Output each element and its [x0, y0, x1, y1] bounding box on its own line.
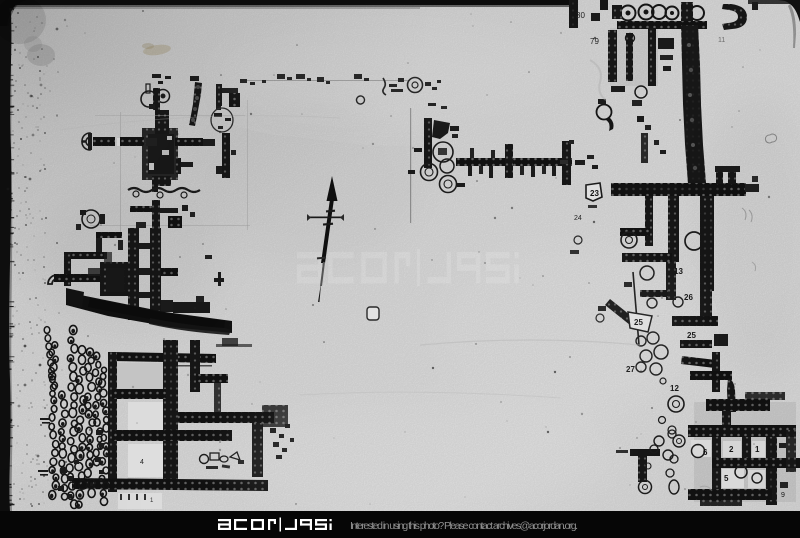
svg-text:13: 13 [674, 267, 683, 276]
svg-text:6: 6 [703, 448, 708, 457]
svg-text:2: 2 [729, 445, 734, 454]
svg-text:26: 26 [684, 293, 693, 302]
svg-text:5: 5 [724, 474, 729, 483]
svg-text:4: 4 [140, 459, 144, 466]
svg-text:23: 23 [590, 189, 599, 198]
svg-text:12: 12 [670, 384, 679, 393]
svg-text:1: 1 [755, 445, 760, 454]
svg-text:24: 24 [574, 215, 582, 222]
svg-text:Interested in using this photo: Interested in using this photo? Please c… [350, 520, 578, 532]
svg-text:11: 11 [718, 37, 725, 44]
svg-text:2: 2 [566, 170, 570, 177]
svg-text:30: 30 [576, 11, 585, 20]
svg-text:9: 9 [781, 492, 785, 499]
